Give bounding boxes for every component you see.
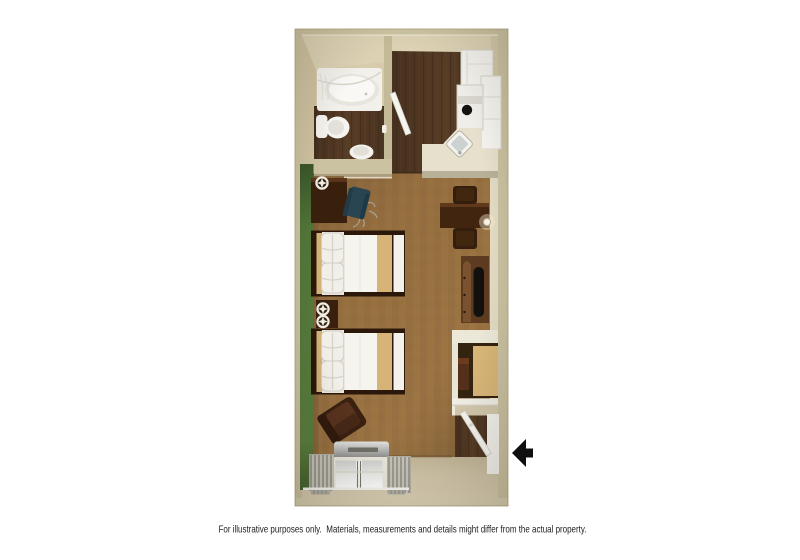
svg-text:For illustrative purposes only: For illustrative purposes only. Material… (219, 525, 587, 536)
